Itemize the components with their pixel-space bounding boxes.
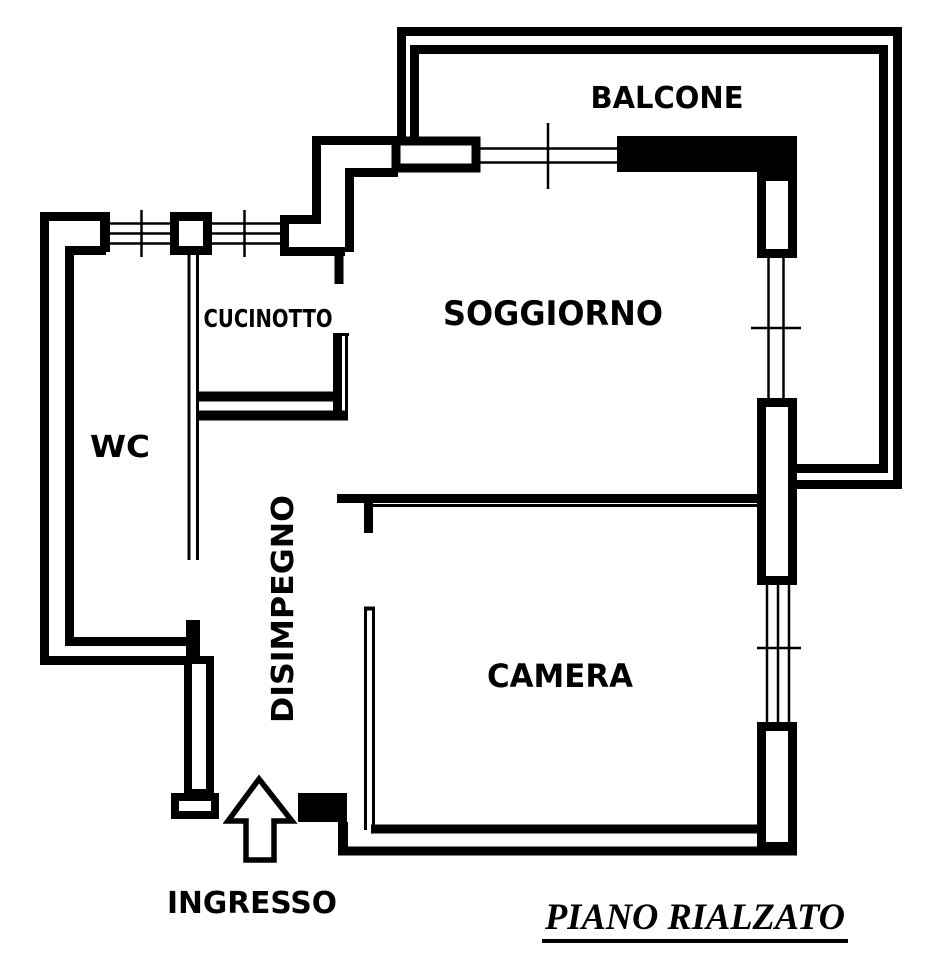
balcony-door-window <box>480 123 617 189</box>
floor-plan-drawing: BALCONE CUCINOTTO SOGGIORNO WC DISIMPEGN… <box>0 0 931 959</box>
entrance-step-block-lower <box>338 822 348 852</box>
soggiorno-east-window <box>751 258 801 398</box>
wc-door-jamb-stub <box>186 620 200 662</box>
label-camera: CAMERA <box>487 657 633 695</box>
entrance-wall-column <box>188 660 210 793</box>
wc-window <box>110 210 172 257</box>
cucinotto-walls <box>197 168 398 417</box>
wall-segment-right-of-balcony-door <box>617 136 797 172</box>
pillar-between-north-windows <box>175 217 208 251</box>
camera-west-partition <box>364 607 375 830</box>
camera-south-walls <box>338 829 797 851</box>
east-pillar-bottom <box>762 727 793 847</box>
entrance-step-block <box>298 793 347 822</box>
wall-segment-hollow-left-of-balcony-door <box>396 141 476 168</box>
soggiorno-camera-divider <box>337 495 757 533</box>
label-cucinotto: CUCINOTTO <box>204 304 333 333</box>
camera-east-window <box>757 585 801 722</box>
entrance-wall-foot <box>175 797 215 815</box>
label-wc: WC <box>90 430 150 465</box>
wc-partition <box>189 253 198 560</box>
east-pillar-top <box>762 177 793 254</box>
label-balcone: BALCONE <box>591 81 744 116</box>
entrance-arrow <box>228 779 292 860</box>
floor-plan: BALCONE CUCINOTTO SOGGIORNO WC DISIMPEGN… <box>0 0 931 959</box>
east-pillar-middle <box>762 403 793 581</box>
plan-title: PIANO RIALZATO <box>544 897 845 938</box>
north-wall <box>280 123 797 252</box>
label-ingresso: INGRESSO <box>167 886 337 921</box>
label-soggiorno: SOGGIORNO <box>443 294 663 334</box>
cucinotto-window <box>207 210 281 257</box>
label-disimpegno: DISIMPEGNO <box>266 495 301 723</box>
